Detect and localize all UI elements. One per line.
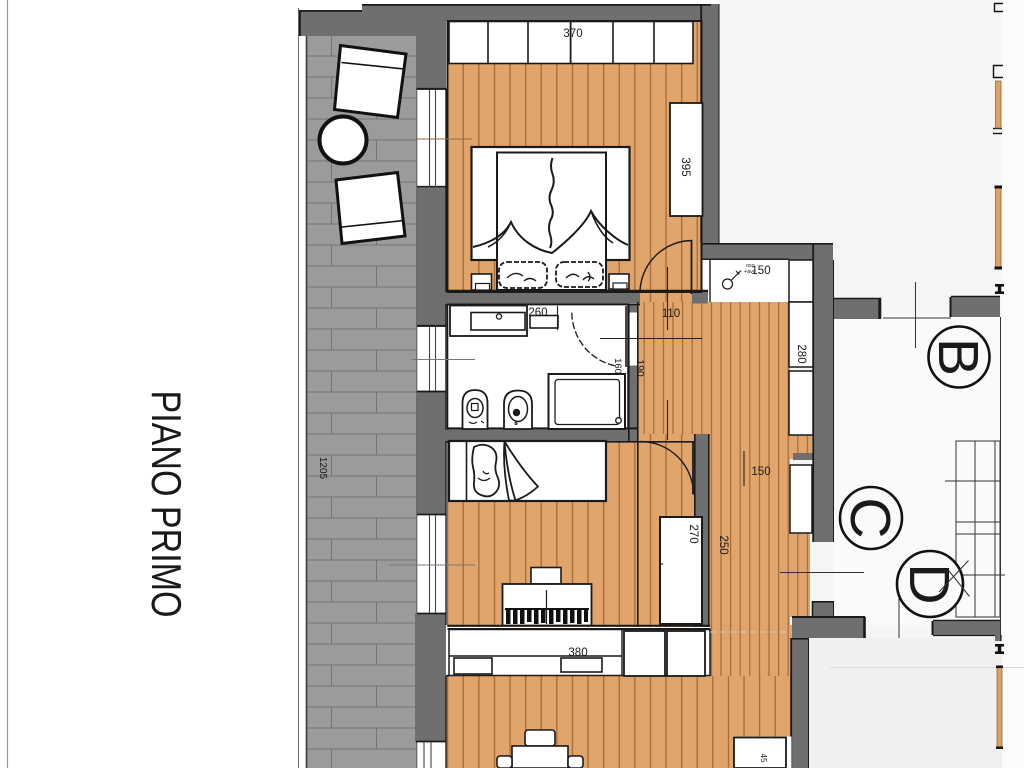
svg-text:260: 260 bbox=[528, 307, 547, 319]
svg-text:395: 395 bbox=[679, 157, 691, 176]
svg-text:160: 160 bbox=[612, 358, 623, 374]
svg-text:370: 370 bbox=[563, 28, 582, 40]
svg-text:B: B bbox=[926, 338, 990, 376]
svg-text:270: 270 bbox=[687, 524, 699, 543]
svg-text:1205: 1205 bbox=[317, 457, 328, 480]
svg-text:150: 150 bbox=[751, 466, 770, 478]
svg-text:C: C bbox=[838, 497, 902, 538]
svg-text:D: D bbox=[897, 563, 961, 604]
svg-text:PIANO PRIMO: PIANO PRIMO bbox=[143, 391, 190, 618]
svg-text:45: 45 bbox=[759, 754, 768, 763]
svg-text:190: 190 bbox=[634, 359, 646, 377]
svg-text:380: 380 bbox=[568, 647, 587, 659]
svg-text:280: 280 bbox=[795, 344, 807, 363]
svg-text:110: 110 bbox=[662, 308, 680, 320]
svg-text:250: 250 bbox=[717, 535, 729, 554]
svg-text:+avv: +avv bbox=[744, 269, 756, 275]
